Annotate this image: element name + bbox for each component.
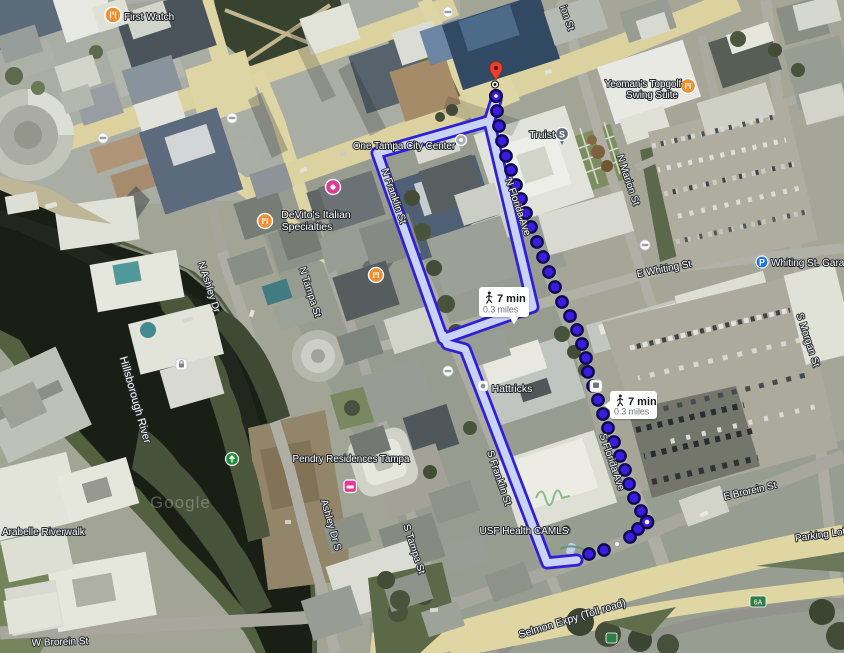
svg-text:USF Health CAMLS: USF Health CAMLS: [480, 526, 569, 537]
svg-text:Specialties: Specialties: [282, 221, 333, 233]
svg-text:Truist: Truist: [529, 129, 555, 141]
svg-text:First Watch: First Watch: [124, 12, 174, 23]
svg-text:Whiting St. Garage: Whiting St. Garage: [771, 258, 844, 269]
svg-text:Swing Suite: Swing Suite: [626, 90, 678, 101]
svg-text:S: S: [559, 130, 565, 140]
svg-text:Hattricks: Hattricks: [492, 383, 533, 395]
svg-text:Pendry Residences Tampa: Pendry Residences Tampa: [293, 454, 410, 465]
svg-text:P: P: [759, 258, 765, 268]
svg-text:Yeoman's Topgolf: Yeoman's Topgolf: [605, 79, 682, 90]
svg-text:6A: 6A: [754, 600, 763, 607]
svg-text:0.3 miles: 0.3 miles: [614, 407, 650, 417]
svg-text:7 min: 7 min: [497, 293, 526, 305]
svg-text:One Tampa City Center: One Tampa City Center: [353, 141, 456, 152]
svg-text:0.3 miles: 0.3 miles: [483, 305, 519, 315]
svg-text:Arabelle Riverwalk: Arabelle Riverwalk: [2, 527, 86, 538]
svg-text:DeVito's Italian: DeVito's Italian: [281, 209, 351, 221]
svg-text:W Brorein St: W Brorein St: [31, 636, 88, 649]
